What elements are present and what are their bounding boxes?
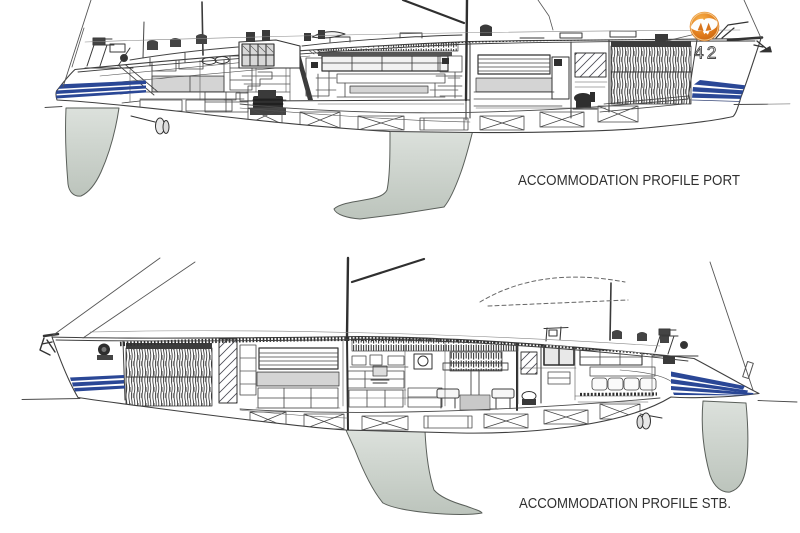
svg-text:ACCOMMODATION PROFILE PORT: ACCOMMODATION PROFILE PORT bbox=[518, 172, 740, 189]
svg-text:42: 42 bbox=[694, 43, 719, 63]
svg-text:ACCOMMODATION PROFILE STB.: ACCOMMODATION PROFILE STB. bbox=[519, 495, 731, 512]
